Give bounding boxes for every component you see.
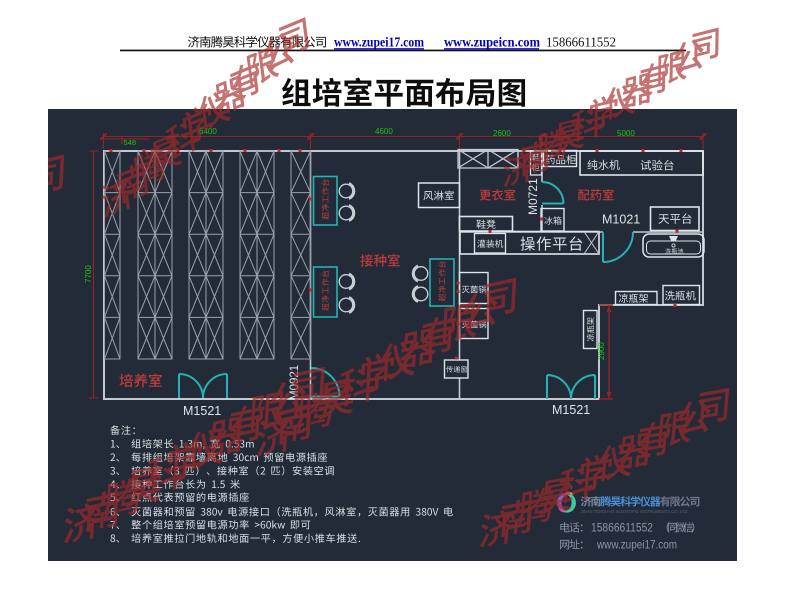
svg-text:15866611552: 15866611552 xyxy=(546,36,616,51)
svg-text:www.zupei17.com: www.zupei17.com xyxy=(596,538,677,552)
svg-text:4600: 4600 xyxy=(375,127,393,136)
svg-text:JINAN TENGHAO SCIENTIFIC INSTR: JINAN TENGHAO SCIENTIFIC INSTRUMENTS CO.… xyxy=(581,509,689,514)
svg-text:15866611552: 15866611552 xyxy=(591,523,653,535)
svg-text:2600: 2600 xyxy=(493,129,511,138)
svg-text:M1521: M1521 xyxy=(552,403,590,417)
svg-text:M1021: M1021 xyxy=(602,213,640,227)
svg-text:5000: 5000 xyxy=(617,129,635,138)
svg-text:M1521: M1521 xyxy=(183,404,221,418)
svg-text:M0721: M0721 xyxy=(526,178,540,215)
svg-text:548: 548 xyxy=(124,138,137,147)
svg-text:2900: 2900 xyxy=(597,342,606,360)
svg-text:7700: 7700 xyxy=(84,265,93,283)
